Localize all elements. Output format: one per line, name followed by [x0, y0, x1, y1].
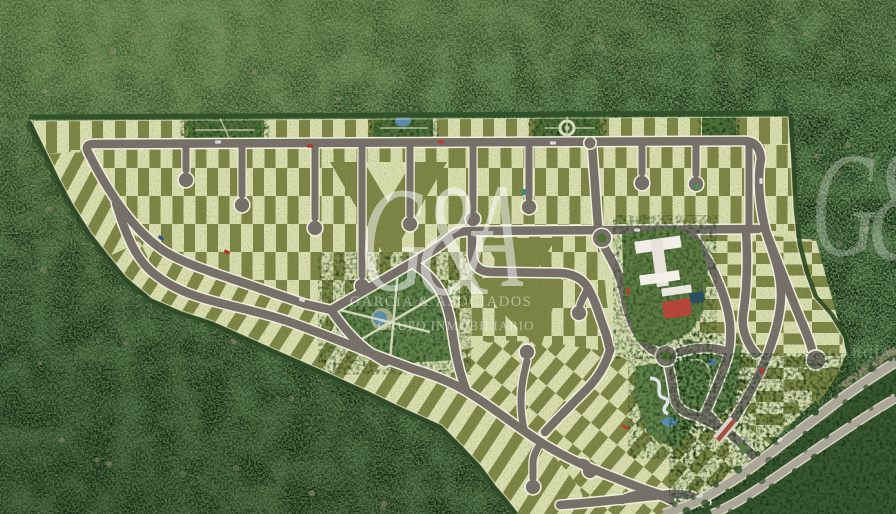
svg-text:GARCÍA & ASOCIADOS: GARCÍA & ASOCIADOS	[350, 293, 533, 310]
svg-text:GRUPO INMOBILIARIO: GRUPO INMOBILIARIO	[377, 318, 534, 333]
svg-text:GARCÍA &: GARCÍA &	[828, 345, 896, 362]
svg-text:&: &	[868, 116, 896, 294]
